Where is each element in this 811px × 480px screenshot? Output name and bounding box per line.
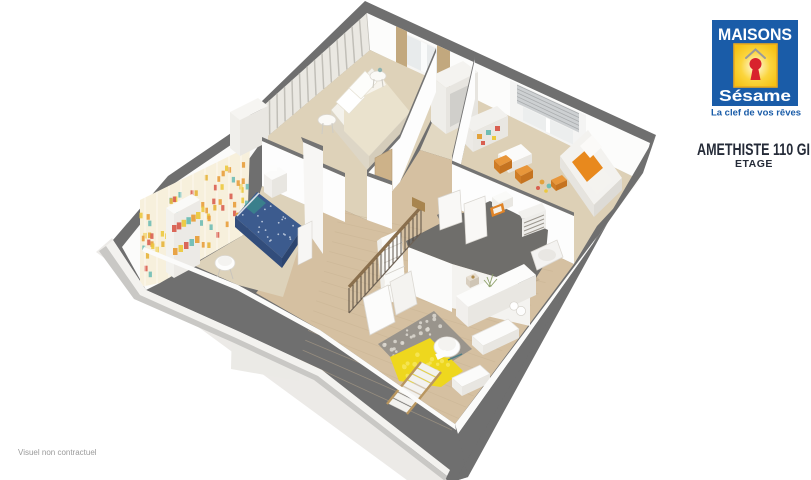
svg-text:AMETHISTE 110 GI: AMETHISTE 110 GI — [697, 140, 810, 159]
svg-text:ETAGE: ETAGE — [735, 158, 773, 170]
svg-text:Sésame: Sésame — [719, 88, 791, 105]
svg-text:La clef de vos rêves: La clef de vos rêves — [711, 108, 801, 119]
svg-text:MAISONS: MAISONS — [718, 26, 792, 44]
svg-text:Visuel non contractuel: Visuel non contractuel — [18, 448, 97, 457]
